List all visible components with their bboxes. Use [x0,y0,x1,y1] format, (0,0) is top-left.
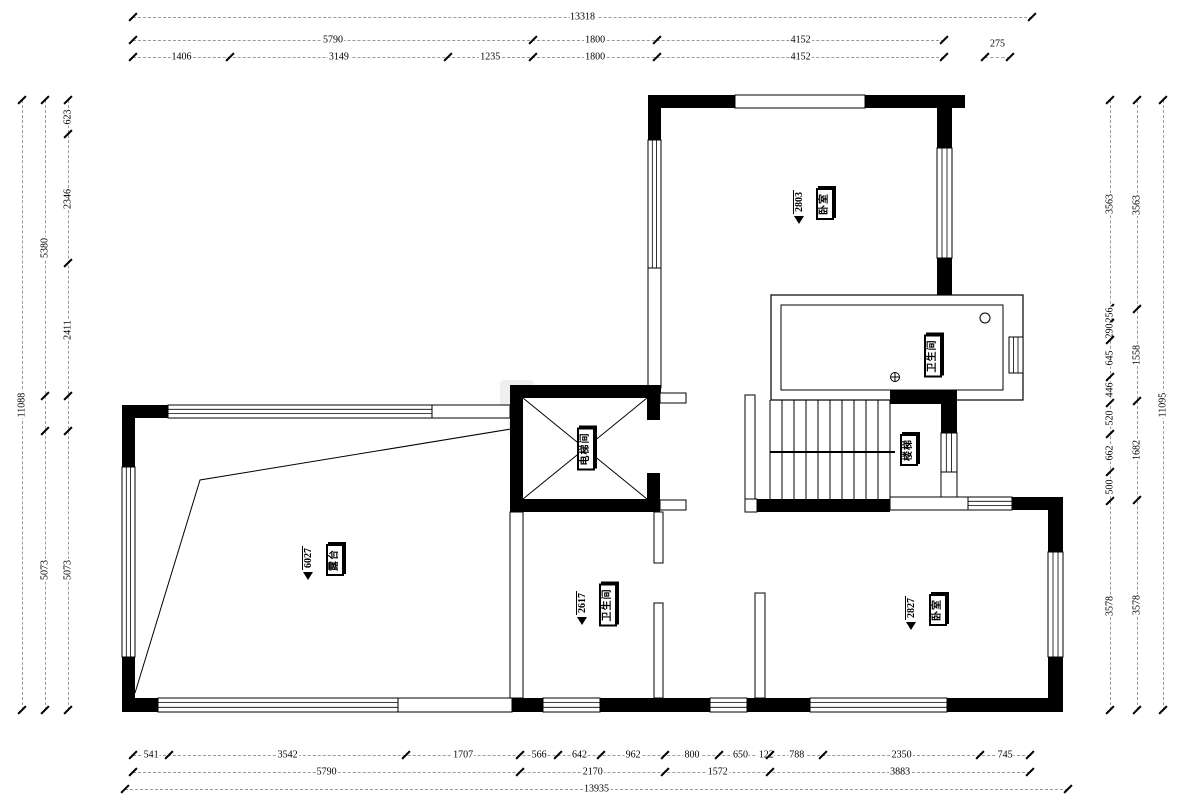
level-mark-bathroom-bottom: 2617 [576,591,588,625]
dimension-value: 275 [989,39,1006,50]
dimension-value: 541 [143,750,160,761]
dimension-value: 3149 [328,52,350,63]
floor-plan-canvas: 卧室 2803 卫生间 电梯间 楼梯 露台 6027 卫生间 2617 卧室 2… [0,0,1200,800]
room-name-box: 卫生间 [599,584,617,627]
dimension-value: 2346 [63,188,74,210]
room-name-box: 电梯间 [577,428,595,471]
room-name-box: 露台 [326,544,344,576]
dimension-value: 1572 [707,767,729,778]
dimension-value: 5073 [63,559,74,581]
dimension-value: 2170 [582,767,604,778]
dimension-value: 1682 [1132,439,1143,461]
dimension-value: 3883 [889,767,911,778]
dimension-value: 5073 [40,559,51,581]
dimension-line [1110,100,1111,710]
lower-middle-walls [510,512,765,698]
dimension-value: 5380 [40,237,51,259]
level-value: 2827 [905,596,917,620]
room-name-box: 卧室 [816,188,834,220]
dimension-value: 642 [571,750,588,761]
elevator-shaft [510,385,686,512]
level-mark-bedroom-top: 2803 [793,190,805,224]
dimension-value: 3563 [1132,194,1143,216]
dimension-value: 662 [1105,444,1116,461]
dimension-value: 962 [625,750,642,761]
dimension-value: 13318 [569,12,596,23]
dimension-value: 566 [531,750,548,761]
dimension-line [133,40,944,41]
dimension-value: 650 [732,750,749,761]
room-name-box: 卧室 [929,594,947,626]
dimension-value: 3578 [1132,594,1143,616]
dimension-value: 4152 [790,52,812,63]
dimension-value: 13935 [583,784,610,795]
stairwell [745,390,957,512]
dimension-line [1137,100,1138,710]
level-triangle-icon [794,216,804,224]
dimension-value: 800 [683,750,700,761]
room-name-box: 卫生间 [924,335,942,378]
terrace-walls [122,405,517,712]
room-label-stairs: 楼梯 [898,434,918,466]
dimension-value: 500 [1105,478,1116,495]
room-label-terrace: 露台 [324,544,344,576]
level-mark-terrace: 6027 [302,546,314,580]
room-label-bathroom-top: 卫生间 [922,335,942,378]
level-mark-bedroom-bottom: 2827 [905,596,917,630]
dimension-line [45,100,46,710]
dimension-value: 520 [1105,410,1116,427]
dimension-value: 5790 [322,35,344,46]
dimension-value: 2411 [63,319,74,341]
room-label-elevator: 电梯间 [575,428,595,471]
level-triangle-icon [577,617,587,625]
dimension-value: 1800 [584,35,606,46]
dimension-value: 446 [1105,382,1116,399]
dimension-value: 1406 [171,52,193,63]
room-label-bedroom-top: 卧室 [814,188,834,220]
dimension-value: 623 [63,109,74,126]
upper-bathroom-walls [771,295,1023,400]
dimension-value: 3563 [1105,193,1116,215]
dimension-value: 1800 [584,52,606,63]
dimension-value: 788 [788,750,805,761]
dimension-value: 1558 [1132,344,1143,366]
dimension-value: 3578 [1105,595,1116,617]
dimension-value: 11095 [1158,392,1169,419]
floor-plan-drawing [0,0,1200,800]
level-value: 6027 [302,546,314,570]
level-triangle-icon [906,622,916,630]
level-triangle-icon [303,572,313,580]
dimension-value: 4152 [790,35,812,46]
floor-drain-icon [891,373,900,382]
room-name-box: 楼梯 [900,434,918,466]
room-label-bathroom-bottom: 卫生间 [597,584,617,627]
dimension-value: 745 [997,750,1014,761]
room-label-bedroom-bottom: 卧室 [927,594,947,626]
dimension-value: 2350 [891,750,913,761]
dimension-value: 3542 [277,750,299,761]
bottom-wall [122,698,1063,712]
level-value: 2617 [576,591,588,615]
dimension-value: 11088 [17,392,28,419]
dimension-value: 5790 [316,767,338,778]
dimension-line [133,57,944,58]
level-value: 2803 [793,190,805,214]
dimension-value: 1707 [452,750,474,761]
dimension-value: 1235 [479,52,501,63]
dimension-value: 645 [1105,350,1116,367]
